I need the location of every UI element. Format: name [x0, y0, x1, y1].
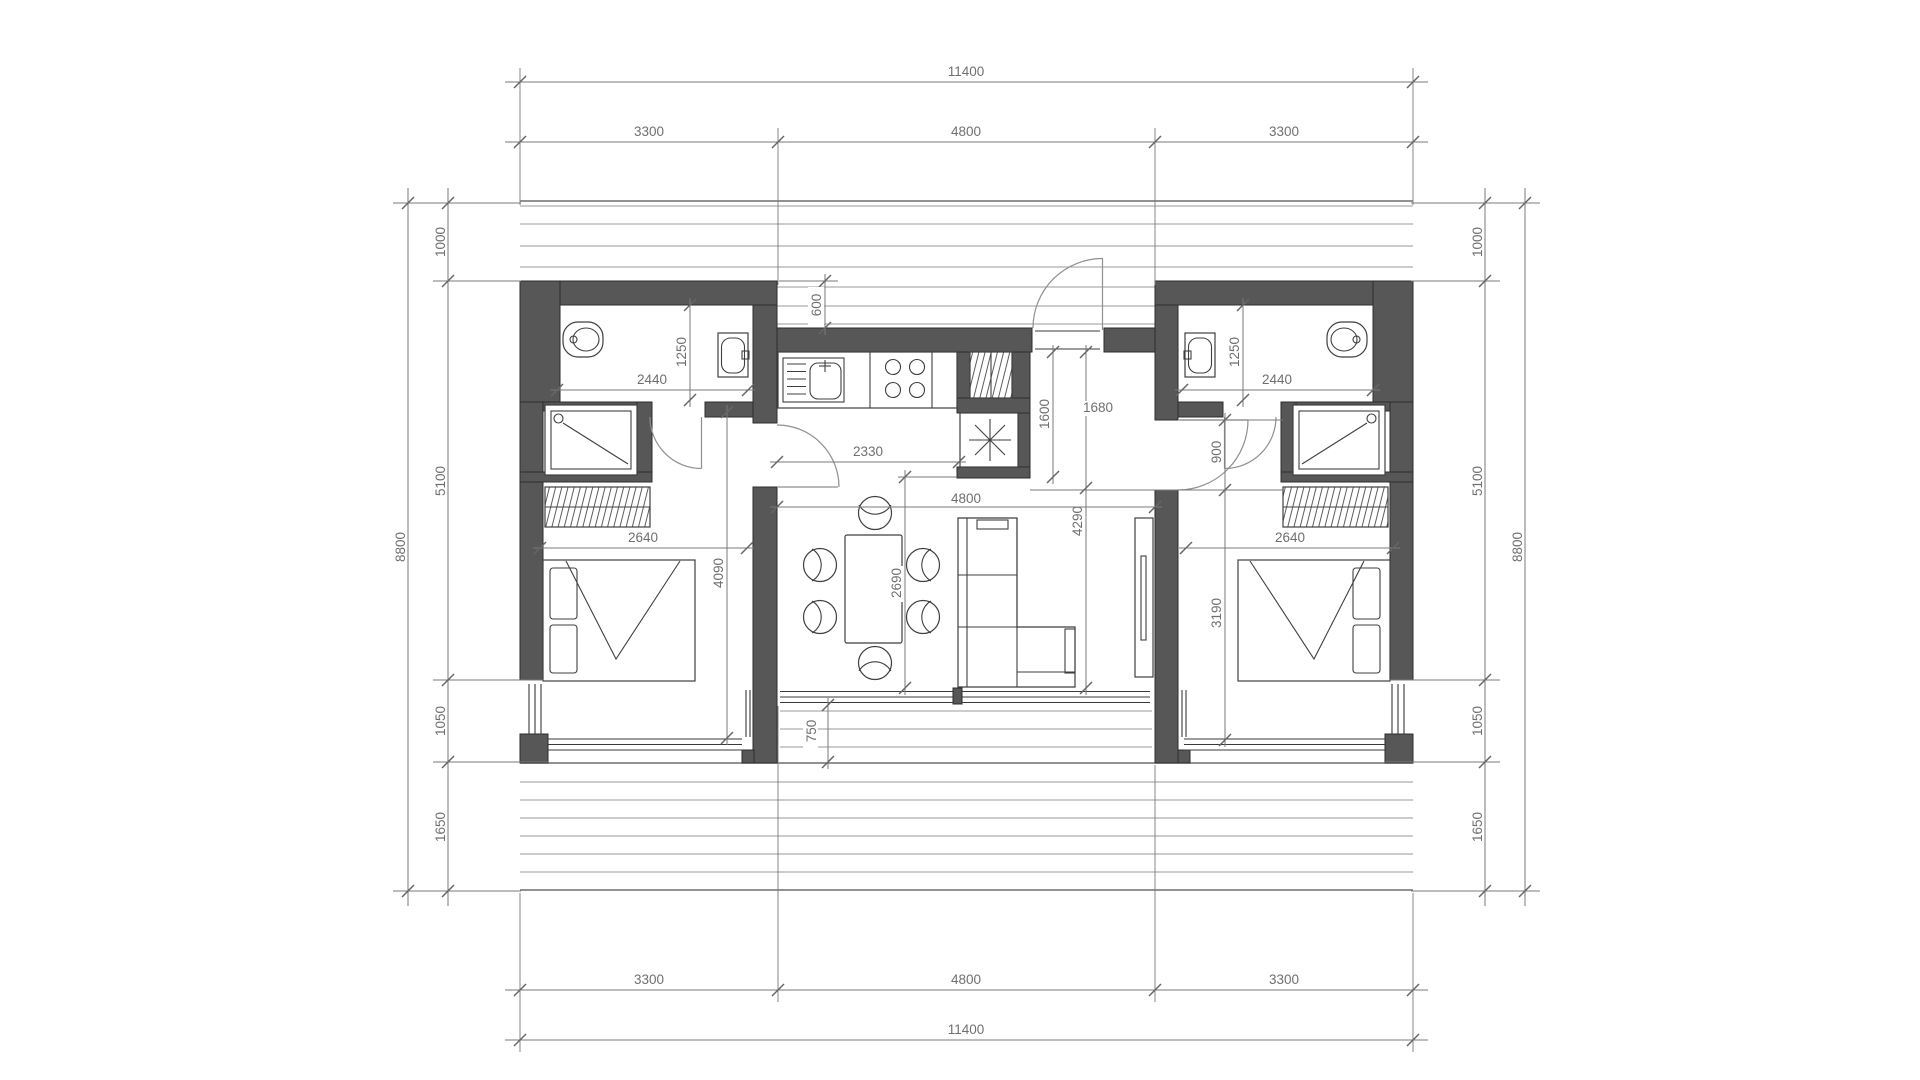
shower-left-symbol	[545, 405, 637, 475]
dim-living-width-label: 4800	[951, 491, 981, 506]
dim-right-bath-width-label: 2440	[1262, 372, 1292, 387]
dim-left-seg4-label: 1650	[433, 812, 448, 842]
floor-plan-canvas: 11400 3300 4800 3300 3300 4800 3300 1140…	[0, 0, 1920, 1080]
shower-right-symbol	[1293, 405, 1385, 475]
kitchen-counter	[778, 352, 957, 408]
dim-right-bed-width-label: 2640	[1275, 530, 1305, 545]
dim-bottom-center-label: 4800	[951, 972, 981, 987]
window-living-south	[780, 692, 1150, 703]
dim-top-center-label: 4800	[951, 124, 981, 139]
dim-bottom-left-label: 3300	[634, 972, 664, 987]
dim-left-total-label: 8800	[393, 532, 408, 562]
washbasin-left-symbol	[718, 333, 749, 377]
door-right-bathroom	[1225, 417, 1277, 469]
tv-cabinet-symbol	[1135, 518, 1153, 677]
dim-living-depth-label: 4290	[1070, 506, 1085, 536]
dim-left-seg1-label: 1000	[433, 227, 448, 257]
door-left-bathroom	[650, 417, 702, 469]
dim-right-seg4-label: 1650	[1470, 812, 1485, 842]
dim-left-bath-depth-label: 1250	[674, 337, 689, 367]
dim-bottom-segments: 3300 4800 3300	[505, 972, 1428, 996]
dim-top-total: 11400	[505, 64, 1428, 88]
dim-right-seg2-label: 5100	[1470, 466, 1485, 496]
tech-closet-symbol	[970, 352, 1012, 398]
window-right-bay-side	[1392, 684, 1404, 734]
window-left-bay-side	[529, 684, 541, 734]
dim-hall-width-label: 2330	[853, 444, 883, 459]
dim-right-seg3-label: 1050	[1470, 706, 1485, 736]
sofa-symbol	[958, 518, 1075, 687]
dim-top-right-label: 3300	[1269, 124, 1299, 139]
dim-entry-width-label: 1680	[1083, 400, 1113, 415]
dim-left-bed-depth-label: 4090	[711, 558, 726, 588]
dim-bottom-total: 11400	[505, 1022, 1428, 1046]
dim-bottom-right-label: 3300	[1269, 972, 1299, 987]
terrace-deck-top	[520, 201, 1413, 324]
dim-left-seg3-label: 1050	[433, 706, 448, 736]
dim-top-segments: 3300 4800 3300	[505, 124, 1428, 148]
dim-top-left-label: 3300	[634, 124, 664, 139]
dim-right-bed-depth-label: 3190	[1209, 598, 1224, 628]
toilet-right-symbol	[1327, 322, 1367, 357]
dim-left-segments: 1000 5100 1050 1650	[433, 188, 454, 906]
wardrobe-left-symbol	[545, 487, 650, 527]
dim-top-total-label: 11400	[948, 64, 985, 79]
dim-left-seg2-label: 5100	[433, 466, 448, 496]
dim-right-seg1-label: 1000	[1470, 227, 1485, 257]
bed-right-symbol	[1238, 560, 1390, 681]
window-left-bay-south	[548, 690, 750, 750]
entrance-threshold	[1035, 331, 1100, 349]
window-right-bay-south	[1182, 690, 1385, 750]
door-entrance	[1033, 258, 1103, 330]
wardrobe-right-symbol	[1283, 487, 1388, 527]
dim-left-total: 8800	[393, 188, 414, 906]
dim-right-door-width-label: 900	[1209, 441, 1224, 464]
dim-right-total-label: 8800	[1510, 532, 1525, 562]
dim-right-bath-depth-label: 1250	[1227, 337, 1242, 367]
dim-dining-depth-label: 2690	[889, 568, 904, 598]
dim-porch-depth-label: 750	[804, 720, 819, 743]
toilet-left-symbol	[563, 322, 603, 357]
dim-right-total: 8800	[1510, 188, 1531, 906]
terrace-deck-bottom	[520, 763, 1413, 890]
dim-bottom-total-label: 11400	[948, 1022, 985, 1037]
dim-left-bed-width-label: 2640	[628, 530, 658, 545]
floor-plan-page: 11400 3300 4800 3300 3300 4800 3300 1140…	[0, 0, 1920, 1080]
porch-deck	[780, 711, 1152, 747]
dim-right-segments: 1000 5100 1050 1650	[1470, 188, 1491, 906]
bed-left-symbol	[543, 560, 695, 681]
washbasin-right-symbol	[1184, 333, 1215, 377]
dim-hall-depth-label: 1600	[1037, 399, 1052, 429]
stove-symbol	[960, 413, 1018, 467]
dim-left-bath-width-label: 2440	[637, 372, 667, 387]
dim-north-offset-label: 600	[809, 294, 824, 317]
door-left-bedroom	[777, 425, 839, 487]
